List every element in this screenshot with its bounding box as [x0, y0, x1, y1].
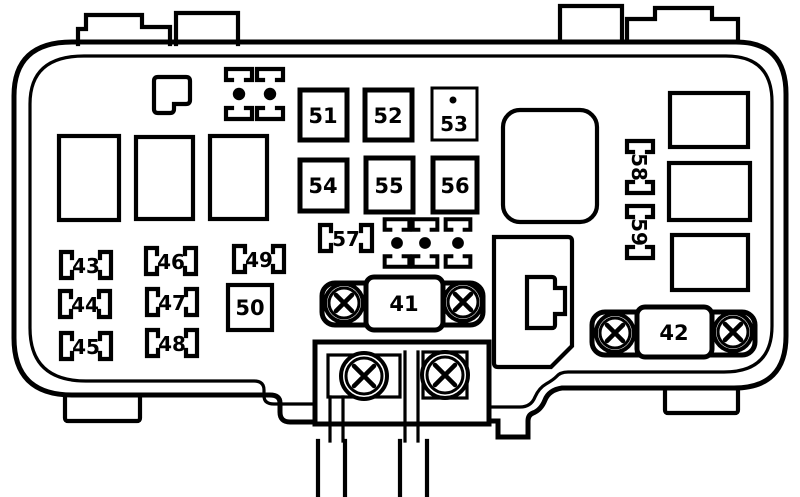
fuse-56: 56 — [433, 158, 477, 212]
fuse-49-label: 49 — [245, 248, 273, 272]
terminal-socket-icon — [413, 219, 438, 267]
fuse-49: 49 — [234, 246, 284, 272]
relay-socket-large — [503, 110, 597, 222]
battery-cable-left — [318, 441, 345, 497]
fuse-41-label: 41 — [389, 292, 418, 316]
fuse-box-diagram: 51 52 53 54 55 56 43 46 49 44 — [0, 0, 800, 497]
fuse-44-label: 44 — [71, 293, 99, 317]
fuse-55: 55 — [366, 158, 413, 212]
fuse-53-label: 53 — [440, 112, 468, 136]
screw-icon — [325, 284, 363, 322]
mounting-tab-bottom-left — [65, 395, 140, 421]
fuse-42: 42 — [592, 307, 755, 357]
fuse-56-label: 56 — [440, 174, 469, 198]
relay-slot-right-1 — [670, 93, 748, 147]
fuse-58-label: 58 — [627, 153, 651, 181]
fuse-51-label: 51 — [308, 104, 337, 128]
fuse-53: 53 — [432, 88, 477, 140]
terminal-socket-icon — [385, 219, 410, 267]
screw-icon — [444, 283, 482, 321]
fuse-46-label: 46 — [157, 250, 185, 274]
bolt-terminal-icon — [422, 352, 468, 398]
battery-terminal-block — [315, 342, 489, 441]
fuse-47: 47 — [147, 289, 197, 315]
fuse-52: 52 — [365, 90, 412, 140]
terminal-socket-icon — [446, 219, 471, 267]
relay-slot-right-3 — [672, 235, 748, 290]
mounting-tab-top-4 — [627, 8, 738, 42]
fuse-58: 58 — [627, 141, 653, 193]
terminal-socket-icon — [257, 69, 283, 119]
fuse-42-label: 42 — [659, 321, 688, 345]
terminal-socket-icon — [226, 69, 252, 119]
fuse-50-label: 50 — [235, 296, 264, 320]
fuse-54: 54 — [300, 160, 347, 211]
fuse-45: 45 — [61, 333, 111, 359]
fuse-48-label: 48 — [158, 332, 186, 356]
fuse-54-label: 54 — [308, 174, 337, 198]
mounting-tab-top-2 — [176, 13, 238, 44]
fuse-43: 43 — [61, 252, 111, 278]
fuse-50: 50 — [228, 285, 272, 330]
fuse-57-label: 57 — [332, 227, 360, 251]
screw-icon — [714, 313, 752, 351]
fuse-45-label: 45 — [72, 335, 100, 359]
fuse-box-svg: 51 52 53 54 55 56 43 46 49 44 — [0, 0, 800, 497]
relay-slot-1 — [59, 136, 119, 220]
fuse-44: 44 — [60, 291, 110, 317]
fuse-48: 48 — [147, 330, 197, 356]
keying-notch-shape — [154, 77, 190, 113]
relay-slot-right-2 — [669, 163, 750, 220]
fuse-47-label: 47 — [158, 291, 186, 315]
mounting-tab-top-3 — [560, 6, 622, 42]
fuse-55-label: 55 — [374, 174, 403, 198]
fuse-52-label: 52 — [373, 104, 402, 128]
battery-cable-right — [400, 441, 427, 497]
fuse-57: 57 — [320, 225, 372, 251]
fuse-59-label: 59 — [627, 218, 651, 246]
fuse-51: 51 — [300, 90, 347, 140]
fuse-59: 59 — [627, 206, 653, 258]
screw-icon — [596, 314, 634, 352]
mounting-tab-bottom-right — [665, 388, 738, 413]
connector-housing — [494, 237, 572, 367]
fuse-43-label: 43 — [72, 254, 100, 278]
fuse-41: 41 — [322, 277, 483, 330]
fuse-53-dot-icon — [450, 97, 457, 104]
relay-slot-2 — [136, 137, 193, 219]
fuse-46: 46 — [146, 248, 196, 274]
relay-slot-3 — [210, 136, 267, 219]
bolt-terminal-icon — [341, 353, 387, 399]
